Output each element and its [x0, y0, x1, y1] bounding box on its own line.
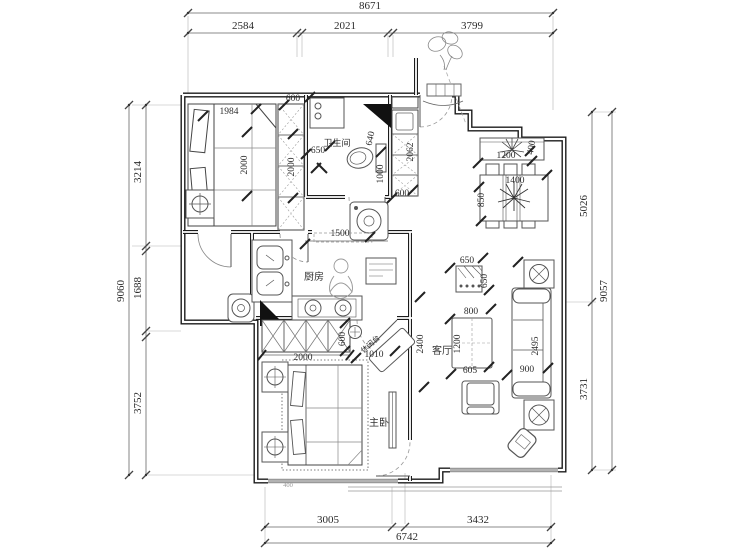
- storage-washer: [228, 294, 254, 322]
- kitchen-sink: [252, 240, 292, 302]
- dim-bed2-width: 1984: [220, 107, 239, 117]
- master-wardrobe: [262, 320, 350, 352]
- room-label-living: 客厅: [432, 344, 452, 357]
- dim-coffee-side: 605: [463, 366, 478, 376]
- tv-panel: [389, 392, 396, 448]
- entry-plant: [426, 30, 465, 70]
- dim-hallway-length: 2400: [416, 334, 426, 353]
- dim-table-width: 1400: [506, 176, 525, 186]
- armchair: [462, 381, 499, 414]
- lamp-table-bottom: [524, 400, 554, 430]
- dim-left-seg1: 3214: [132, 161, 144, 184]
- dim-coffee-width: 800: [464, 307, 479, 317]
- dim-top-total: 8671: [359, 0, 381, 12]
- floor-plan-page: 8671 2584 2021 3799 9060 3214 1688 3752 …: [0, 0, 740, 555]
- entry-door-arc: [420, 95, 452, 127]
- dim-right-seg1: 5026: [578, 195, 590, 218]
- dim-top-seg2: 2021: [334, 20, 356, 32]
- dim-left-total: 9060: [115, 280, 127, 303]
- dim-bottom-seg2: 3432: [467, 514, 489, 526]
- floor-plan-canvas: 8671 2584 2021 3799 9060 3214 1688 3752 …: [0, 0, 740, 555]
- dim-right-total: 9057: [598, 280, 610, 303]
- dim-kitchen-opening: 1500: [331, 229, 350, 239]
- dim-bed2-length: 2000: [240, 155, 250, 174]
- master-bed: [282, 360, 368, 470]
- dim-top-seg3: 3799: [461, 20, 484, 32]
- dim-top-seg1: 2584: [232, 20, 255, 32]
- room-label-kitchen: 厨房: [304, 270, 324, 283]
- dim-coffee-length: 1200: [453, 334, 463, 353]
- balcony-sill-lines: [348, 487, 562, 491]
- second-bedroom-nightstand: [186, 190, 214, 218]
- dim-bottom-seg1: 3005: [317, 514, 340, 526]
- bathroom-sink: [310, 98, 344, 128]
- corner-stool: [506, 427, 538, 460]
- dim-wardrobe2-length: 2000: [287, 157, 297, 176]
- dim-planter-width: 1200: [497, 151, 516, 161]
- dim-master-wardrobe-depth: 600: [338, 332, 348, 347]
- dim-left-seg3: 3752: [132, 392, 144, 414]
- dim-cabinet-length: 2062: [406, 142, 416, 161]
- dim-master-door-width: 1010: [365, 350, 384, 360]
- room-label-bathroom: 卫生间: [323, 137, 350, 148]
- flower-stand: [456, 266, 482, 292]
- dim-cabinet-width: 600: [395, 189, 410, 199]
- dim-table-depth: 850: [477, 193, 487, 208]
- dim-stand-width: 650: [460, 256, 475, 266]
- dim-window-seg: 400: [283, 482, 293, 489]
- section-marker-bath: [363, 104, 391, 128]
- dim-left-seg2: 1688: [132, 277, 144, 300]
- master-nightstand-bottom: [262, 432, 288, 462]
- master-nightstand-top: [262, 362, 288, 392]
- washing-machine: [350, 202, 388, 240]
- lamp-table-top: [524, 260, 554, 288]
- dim-bottom-total: 6742: [396, 531, 418, 543]
- dim-right-seg2: 3731: [578, 378, 590, 400]
- dim-sofa-depth: 900: [520, 365, 535, 375]
- dim-wardrobe2-depth: 600: [286, 94, 301, 104]
- kitchen-cabinet-box: [366, 258, 396, 284]
- dim-stand-depth: 650: [480, 274, 490, 289]
- room-label-master: 主卧: [369, 416, 389, 429]
- storage-door-arc: [198, 234, 231, 267]
- cook-figure: [330, 259, 353, 298]
- dim-bath-width: 650: [311, 146, 326, 156]
- kitchen-counter-stove: [292, 296, 362, 320]
- window-living-bottom: [450, 467, 558, 473]
- dim-master-wardrobe-width: 2000: [294, 353, 313, 363]
- leisure-stool: [349, 326, 362, 339]
- dim-sofa-length: 2495: [531, 336, 541, 355]
- dim-bath-length: 1000: [376, 164, 386, 183]
